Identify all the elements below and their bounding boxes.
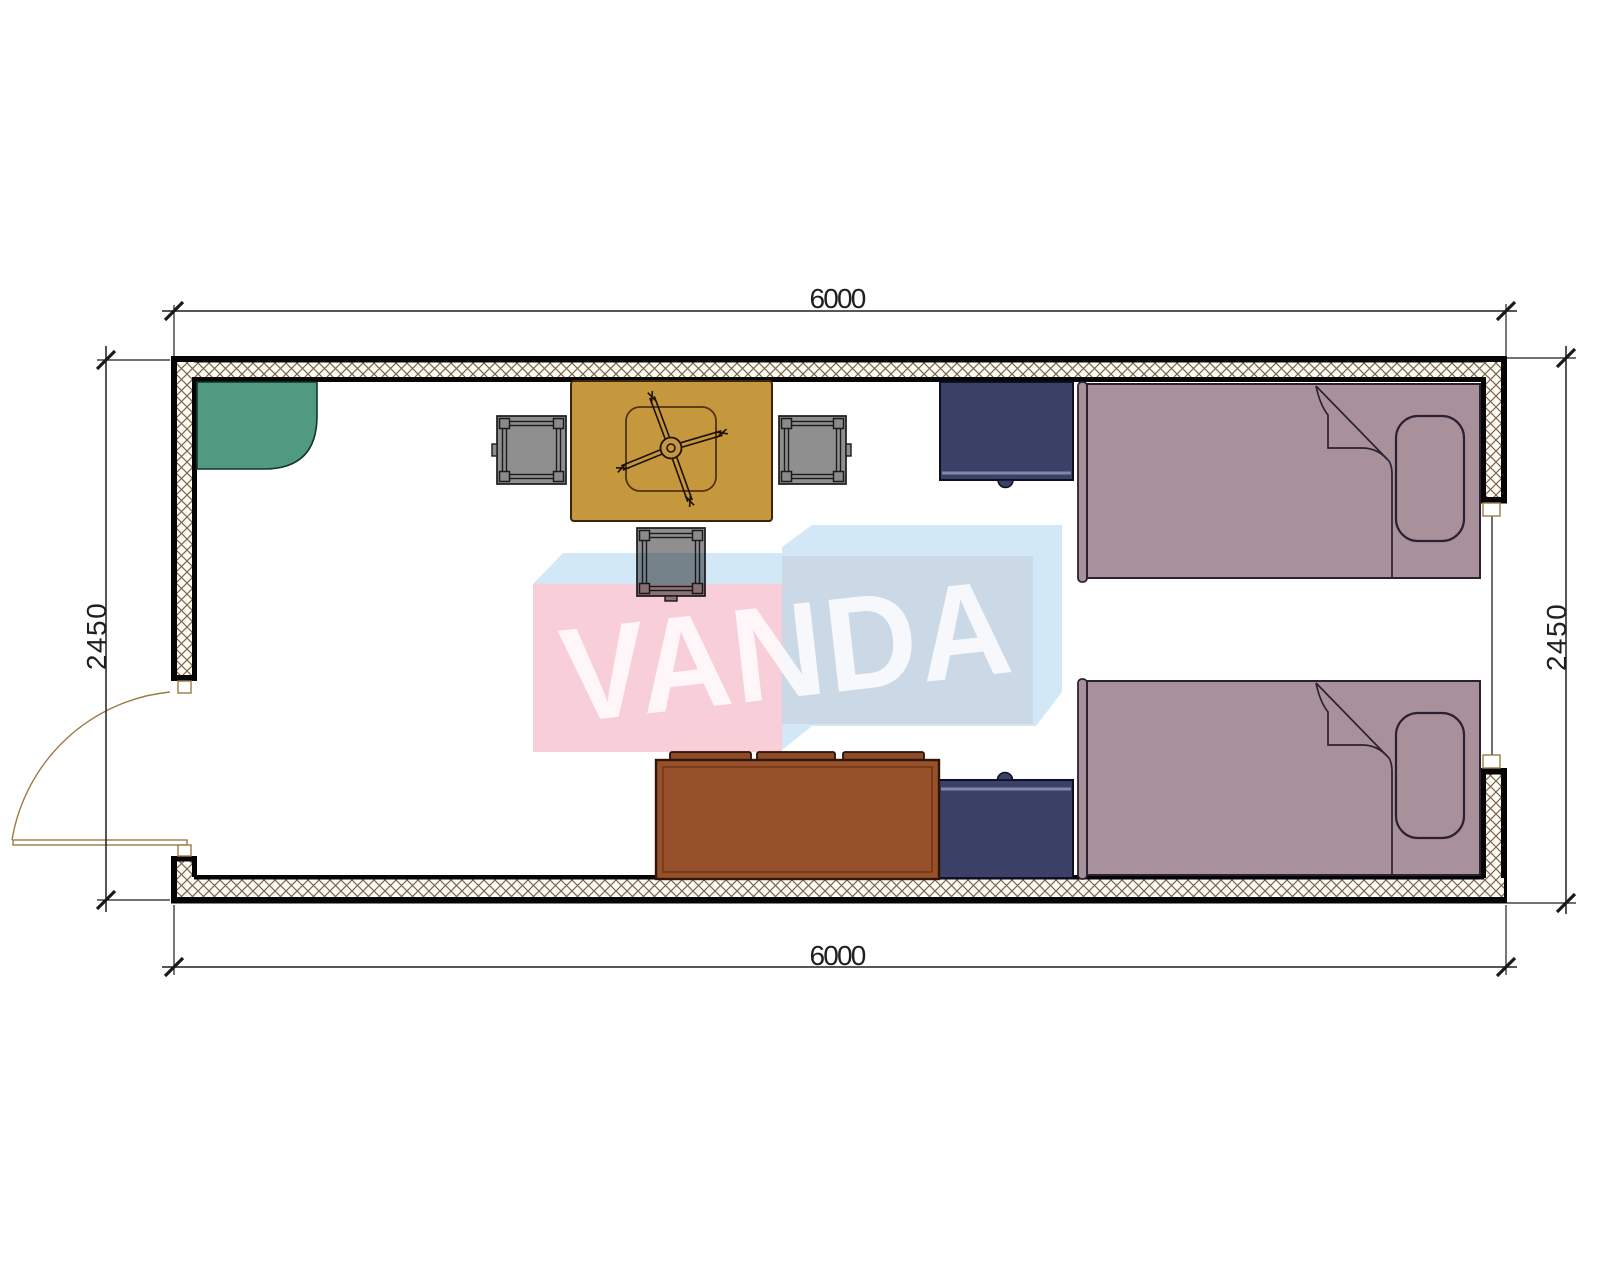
svg-text:6000: 6000: [809, 940, 865, 971]
svg-text:6000: 6000: [809, 283, 865, 314]
svg-text:2450: 2450: [81, 602, 112, 670]
svg-text:2450: 2450: [1541, 603, 1572, 671]
